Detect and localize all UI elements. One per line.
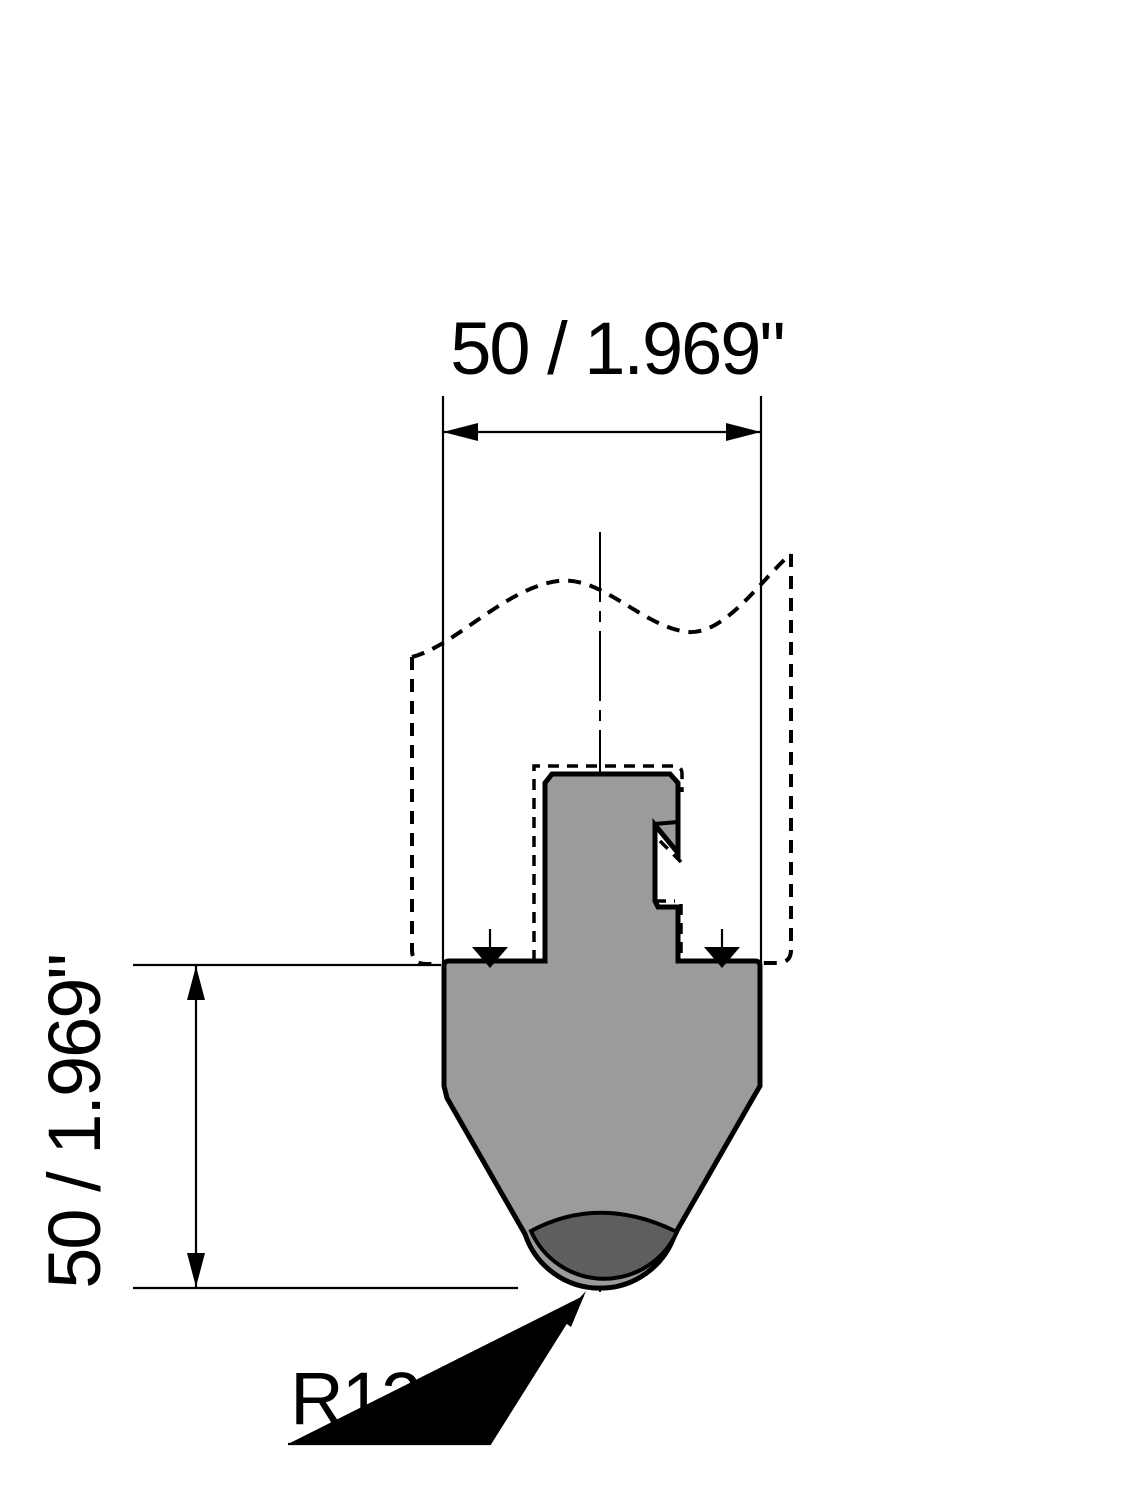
drawing-page: 50 / 1.969" 50 / 1.969" R12.5 [0,0,1124,1500]
radius-label: R12.5 [290,1357,477,1440]
holder-left-dashed-edge [412,657,436,964]
top-dim-arrow-left [443,423,478,441]
height-dim-arrow-bottom [187,1253,205,1287]
radius-callout: R12.5 [288,1291,586,1444]
holder-right-dashed-edge [762,554,791,963]
technical-drawing-canvas: 50 / 1.969" 50 / 1.969" R12.5 [0,0,1124,1500]
height-dimension-label: 50 / 1.969" [33,955,116,1288]
top-dim-arrow-right [726,423,761,441]
break-wavy-line [412,554,791,657]
height-dim-arrow-top [187,966,205,1000]
top-width-dimension-label: 50 / 1.969" [450,307,783,390]
safety-notch-slit [654,822,678,824]
